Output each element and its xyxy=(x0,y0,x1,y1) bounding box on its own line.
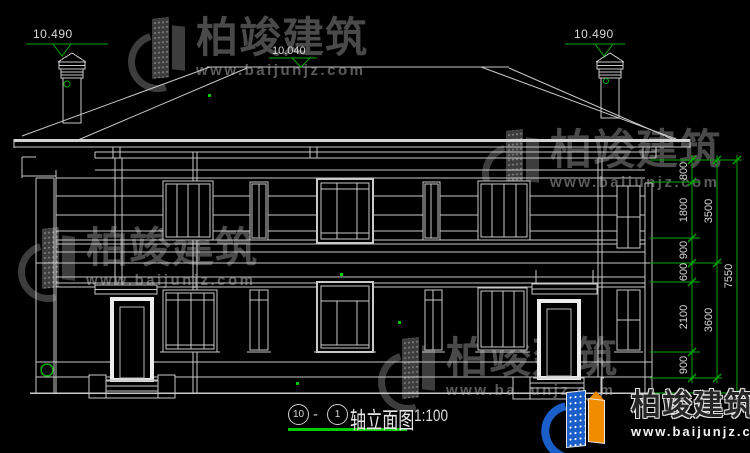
brand-logo-icon xyxy=(543,390,627,452)
dim-segment-900a: 900 xyxy=(678,241,690,259)
windows-second-floor xyxy=(163,179,640,248)
axis-separator: - xyxy=(313,406,318,423)
elevation-value-left: 10.490 xyxy=(33,27,73,41)
axis-bubble-10: 10 xyxy=(288,404,309,425)
dim-subtotal-3500: 3500 xyxy=(703,199,715,223)
elevation-linework xyxy=(0,0,750,453)
entrance-left xyxy=(89,285,175,398)
level-symbols xyxy=(26,44,625,67)
chimney-left xyxy=(58,53,86,123)
brand-logo: 柏竣建筑 www.baijunjz.com xyxy=(543,390,750,452)
dim-total-7550: 7550 xyxy=(723,264,735,288)
elevation-value-ridge: 10.040 xyxy=(272,45,306,57)
cad-elevation-drawing: 柏竣建筑 www.baijunjz.com 柏竣建筑 www.baijunjz.… xyxy=(0,0,750,453)
axis-bubble-1: 1 xyxy=(327,404,348,425)
roof xyxy=(14,67,690,158)
dim-segment-800: 800 xyxy=(678,162,690,180)
dim-subtotal-3600: 3600 xyxy=(703,308,715,332)
elevation-value-right: 10.490 xyxy=(574,27,614,41)
drawing-scale: 1:100 xyxy=(414,406,448,426)
brand-logo-url: www.baijunjz.com xyxy=(631,424,750,439)
dim-segment-900b: 900 xyxy=(678,356,690,374)
chimney-right xyxy=(596,53,624,118)
dim-segment-2100: 2100 xyxy=(678,305,690,329)
drawing-title: 轴立面图 xyxy=(350,401,414,435)
dim-segment-1800: 1800 xyxy=(678,198,690,222)
dim-segment-600: 600 xyxy=(678,263,690,281)
brand-logo-name: 柏竣建筑 xyxy=(631,390,750,422)
